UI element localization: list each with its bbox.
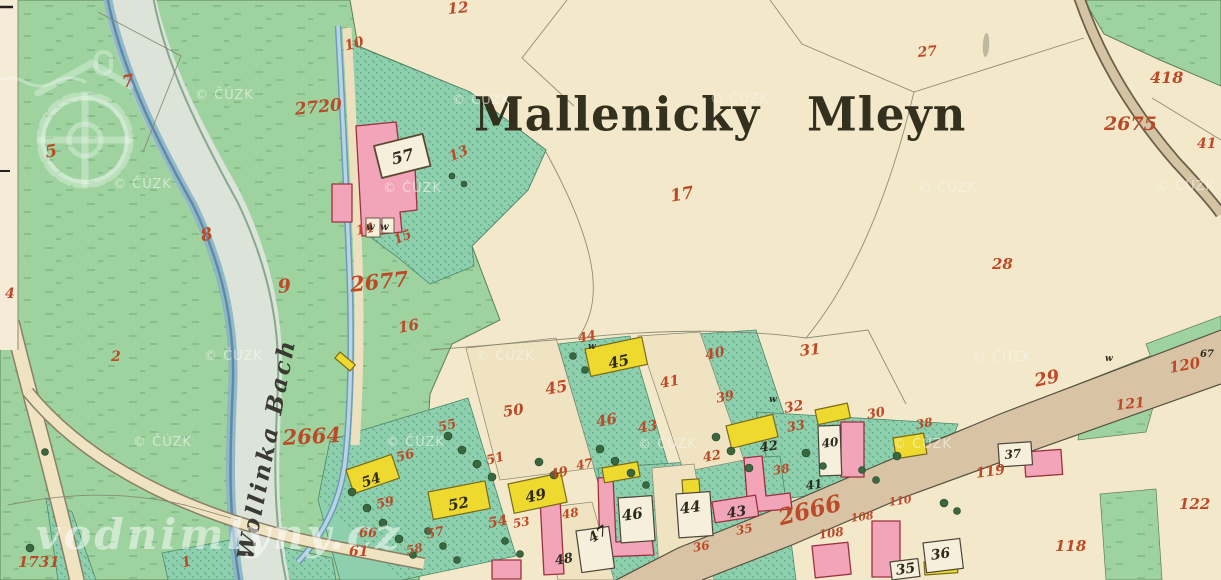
building-44 <box>676 492 713 538</box>
map-title: Mallenicky Mleyn <box>474 87 966 142</box>
building-47 <box>576 526 615 572</box>
cadastral-map: Mallenicky Mleyn Wollinka Bach vodnimlyn… <box>0 0 1221 580</box>
building-46 <box>618 496 655 543</box>
brand-watermark: vodnimlyny.cz <box>36 510 402 559</box>
building-36 <box>923 538 963 572</box>
building-37 <box>998 442 1033 467</box>
building-35 <box>890 559 920 580</box>
watermill-logo-watermark <box>0 0 260 240</box>
building-56 <box>332 184 352 222</box>
